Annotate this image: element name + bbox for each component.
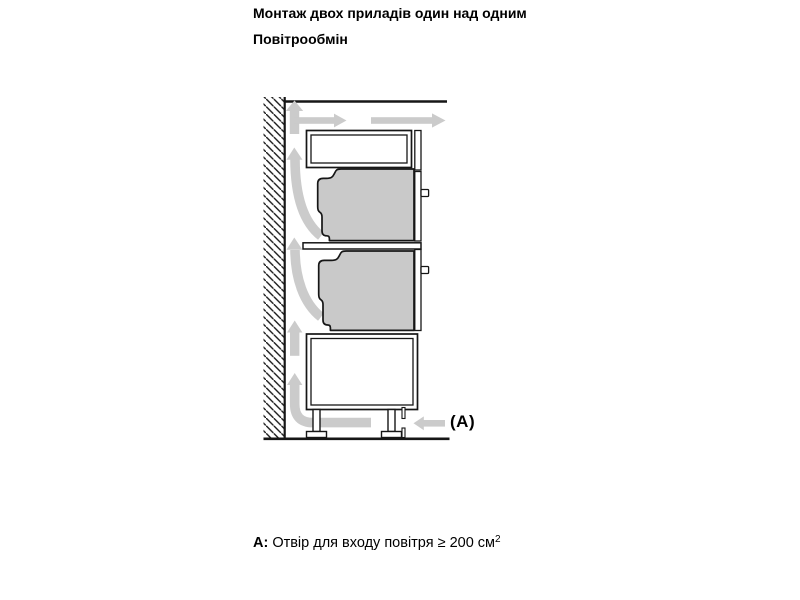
arrow-up-mid-icon [287, 321, 302, 356]
lower-oven-fascia [415, 250, 421, 331]
page-title: Монтаж двох приладів один над одним [253, 5, 527, 21]
footnote: A:Отвір для входу повітря ≥ 200 см2 [253, 535, 501, 551]
cabinet-foot-left [307, 432, 327, 438]
cabinet-foot-right [382, 432, 402, 438]
base-cabinet-outer [307, 334, 418, 410]
wall-hatch [264, 97, 285, 438]
installation-diagram [255, 90, 510, 450]
top-compartment-outer [307, 131, 412, 168]
mid-shelf [303, 243, 421, 249]
upper-oven-handle-icon [421, 190, 429, 197]
lower-oven-handle-icon [421, 267, 429, 274]
air-inlet-label: (A) [450, 412, 475, 432]
footnote-label: A: [253, 535, 268, 551]
inlet-dashed-marks [402, 408, 405, 438]
lower-oven [319, 250, 429, 331]
arrow-right-inner-icon [294, 114, 347, 128]
cabinet-leg-right [388, 410, 395, 432]
upper-oven-fascia [415, 172, 421, 242]
footnote-text: Отвір для входу повітря ≥ 200 см [272, 535, 495, 551]
footnote-superscript: 2 [495, 534, 501, 545]
upper-oven-body [318, 169, 414, 241]
cabinet-leg-left [313, 410, 320, 432]
arrow-right-outer-icon [371, 113, 446, 127]
lower-oven-body [319, 251, 414, 330]
section-subtitle: Повітрообмін [253, 31, 348, 47]
upper-oven [318, 169, 429, 241]
top-fascia-strip [415, 131, 421, 171]
arrow-inlet-left-icon [414, 416, 446, 430]
